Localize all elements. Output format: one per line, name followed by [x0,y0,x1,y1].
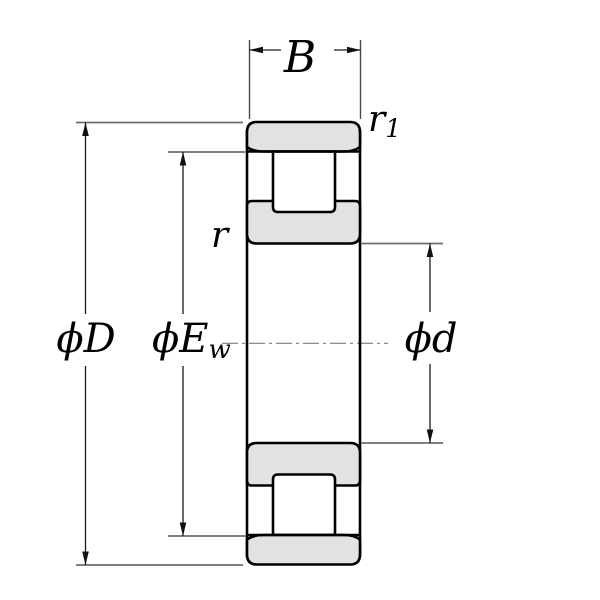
bearing-diagram: B r1 r ϕD ϕEw ϕd [0,0,600,600]
dimension-bore-diameter: ϕd [361,244,457,444]
raceway-diameter-label-main: ϕE [152,316,208,362]
bore-diameter-label: ϕd [405,316,458,362]
roller-top [273,152,335,213]
outer-chamfer-label-main: r [368,99,387,140]
bore-diameter-arrow-top-icon [427,244,434,258]
raceway-diameter-arrow-top-icon [180,152,187,166]
outer-diameter-arrow-top-icon [82,123,89,137]
raceway-diameter-label: ϕEw [152,316,231,365]
roller-bottom [273,475,335,536]
dimension-raceway-diameter: ϕEw [152,152,246,536]
dimension-width-B: B [250,32,361,119]
outer-diameter-arrow-bottom-icon [82,552,89,566]
outer-ring-top-section [247,122,360,152]
outer-ring-bottom-section [247,535,360,565]
width-arrow-right-icon [347,47,361,54]
bearing-diagram-canvas: B r1 r ϕD ϕEw ϕd [0,0,600,600]
width-arrow-left-icon [250,47,264,54]
raceway-diameter-label-subscript: w [208,335,230,365]
outer-diameter-label: ϕD [56,316,115,362]
outer-chamfer-label: r1 [368,99,401,143]
width-label: B [283,32,316,83]
inner-chamfer-label: r [211,215,230,256]
bore-diameter-arrow-bottom-icon [427,430,434,444]
raceway-diameter-arrow-bottom-icon [180,523,187,537]
outer-chamfer-label-subscript: 1 [385,114,401,143]
